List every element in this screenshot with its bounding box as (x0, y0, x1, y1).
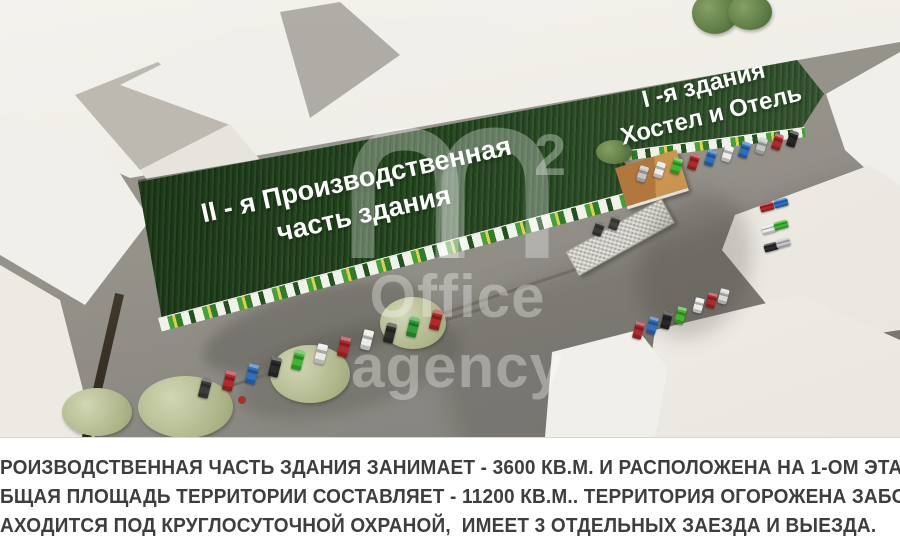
watermark-agency: agency (335, 332, 580, 401)
watermark-office: Office (345, 262, 570, 331)
real-estate-render-page: II - я Производственная часть здания I -… (0, 0, 900, 550)
description-line-1: РОИЗВОДСТВЕННАЯ ЧАСТЬ ЗДАНИЯ ЗАНИМАЕТ - … (0, 454, 855, 483)
description-line-3: АХОДИТСЯ ПОД КРУГЛОСУТОЧНОЙ ОХРАНОЙ, ИМЕ… (0, 512, 855, 541)
tree (62, 388, 132, 436)
tree (138, 376, 233, 438)
aerial-render: II - я Производственная часть здания I -… (0, 0, 900, 438)
m2-logo-icon (350, 126, 550, 258)
description-line-2: БЩАЯ ПЛОЩАДЬ ТЕРРИТОРИИ СОСТАВЛЯЕТ - 112… (0, 483, 855, 512)
red-bush (238, 396, 246, 404)
property-description: РОИЗВОДСТВЕННАЯ ЧАСТЬ ЗДАНИЯ ЗАНИМАЕТ - … (0, 438, 900, 550)
m2-logo-sup: 2 (534, 122, 566, 189)
